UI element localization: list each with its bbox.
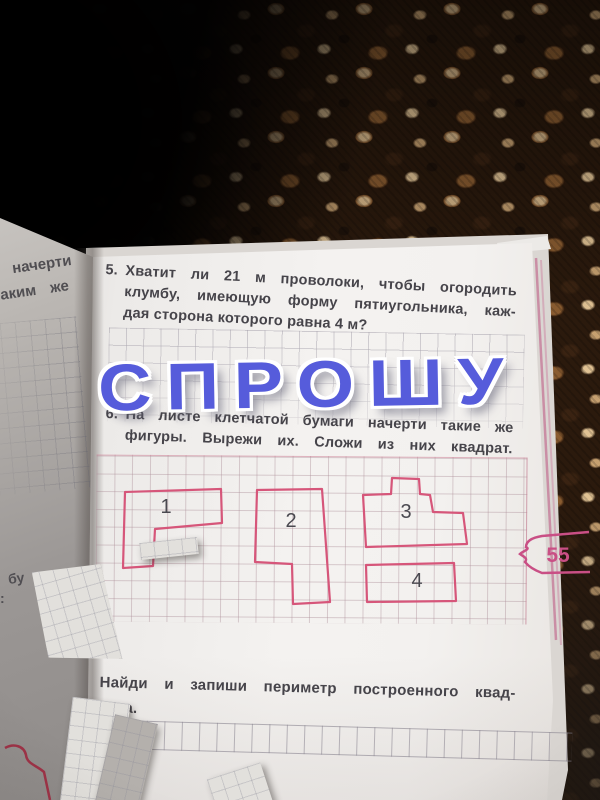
- page-number-badge: 55: [546, 544, 570, 567]
- figure-2-outline: [255, 489, 330, 604]
- figure-2-label: 2: [285, 510, 296, 532]
- figure-4-label: 4: [411, 570, 422, 592]
- page-edge-stripe: [541, 260, 561, 645]
- left-page-figure-outline: [5, 746, 50, 800]
- figure-3-label: 3: [400, 501, 411, 523]
- figure-3-outline: [363, 478, 467, 547]
- page-edge-stripe: [536, 258, 556, 640]
- photo-scene: начерти аким же бу : 5. Хватит ли 21 м п…: [0, 0, 600, 800]
- figure-1-label: 1: [160, 496, 171, 518]
- watermark: СПРОШУ: [72, 342, 544, 426]
